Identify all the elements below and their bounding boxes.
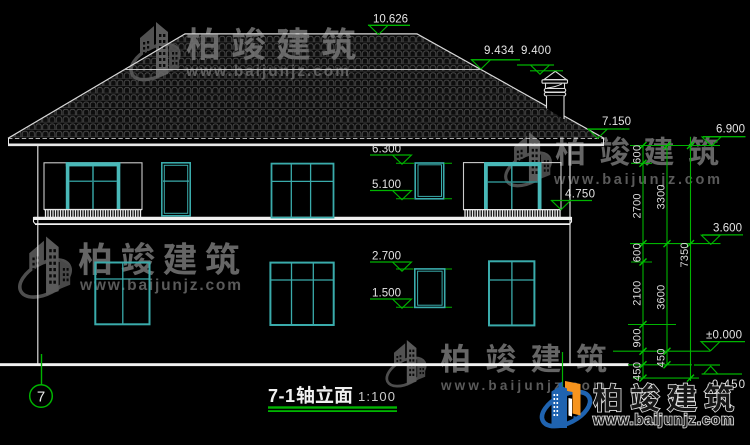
svg-text:2700: 2700 xyxy=(632,194,644,219)
svg-text:600: 600 xyxy=(632,145,644,164)
svg-text:450: 450 xyxy=(656,349,668,368)
svg-text:www.baijunjz.com: www.baijunjz.com xyxy=(592,413,734,429)
svg-text:3.600: 3.600 xyxy=(713,223,742,235)
svg-text:5.100: 5.100 xyxy=(372,179,401,191)
svg-text:2100: 2100 xyxy=(632,281,644,306)
svg-text:7-1: 7-1 xyxy=(268,386,295,406)
svg-text:900: 900 xyxy=(632,329,644,348)
svg-text:1.500: 1.500 xyxy=(372,288,401,300)
svg-text:6.900: 6.900 xyxy=(716,124,745,136)
svg-text:3600: 3600 xyxy=(656,285,668,310)
svg-text:2.700: 2.700 xyxy=(372,251,401,263)
svg-text:7: 7 xyxy=(37,389,45,406)
svg-text:9.400: 9.400 xyxy=(521,45,551,57)
svg-text:450: 450 xyxy=(632,362,644,381)
svg-text:7350: 7350 xyxy=(679,243,691,268)
svg-text:10.626: 10.626 xyxy=(373,14,408,26)
svg-text:1:100: 1:100 xyxy=(358,389,395,404)
svg-text:6.300: 6.300 xyxy=(372,144,401,156)
svg-text:4.750: 4.750 xyxy=(565,189,595,201)
svg-text:3300: 3300 xyxy=(656,185,668,210)
svg-text:±0.000: ±0.000 xyxy=(706,330,742,342)
svg-text:7.150: 7.150 xyxy=(602,116,631,128)
svg-text:9.434: 9.434 xyxy=(484,45,515,57)
svg-text:600: 600 xyxy=(632,243,644,262)
